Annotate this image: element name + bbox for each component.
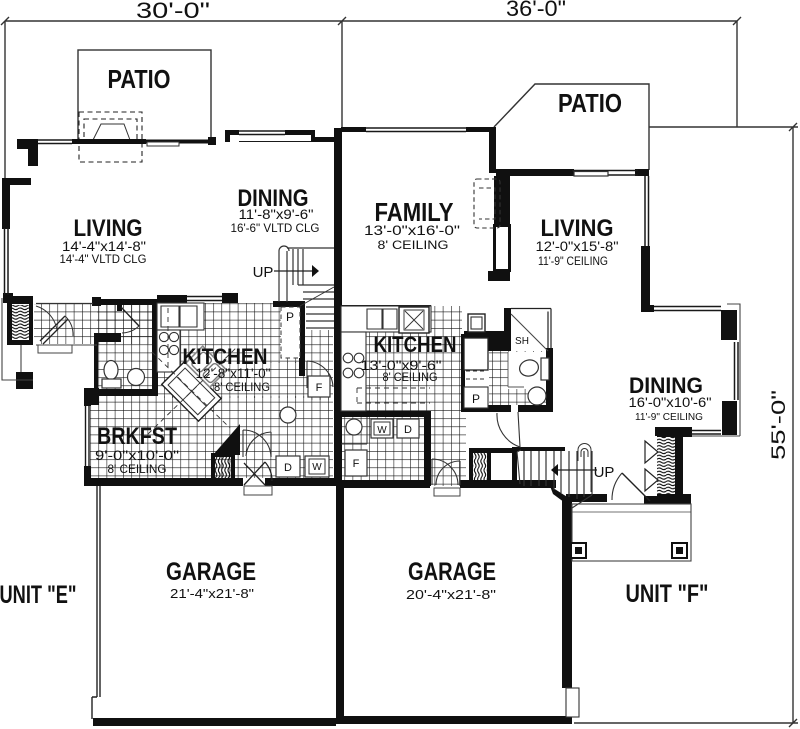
svg-text:F: F	[316, 382, 323, 394]
svg-text:GARAGE: GARAGE	[166, 558, 256, 586]
svg-text:UP: UP	[253, 264, 274, 281]
svg-text:D: D	[404, 424, 412, 436]
svg-text:P: P	[286, 310, 294, 324]
svg-text:30'-0": 30'-0"	[136, 0, 210, 23]
svg-text:36'-0": 36'-0"	[506, 0, 566, 21]
svg-text:11'-9" CEILING: 11'-9" CEILING	[635, 411, 703, 423]
svg-text:GARAGE: GARAGE	[408, 558, 496, 586]
svg-text:14'-4" VLTD CLG: 14'-4" VLTD CLG	[60, 252, 147, 266]
svg-text:UNIT "E": UNIT "E"	[0, 581, 77, 609]
svg-text:11'-9" CEILING: 11'-9" CEILING	[538, 254, 608, 268]
svg-text:8' CEILING: 8' CEILING	[378, 238, 449, 252]
svg-text:W: W	[377, 425, 387, 436]
svg-text:BRKFST: BRKFST	[97, 423, 177, 450]
svg-text:PATIO: PATIO	[108, 64, 171, 94]
svg-text:16'-0"x10'-6": 16'-0"x10'-6"	[629, 395, 712, 410]
svg-text:F: F	[353, 458, 360, 470]
svg-text:11'-8"x9'-6": 11'-8"x9'-6"	[239, 207, 314, 222]
svg-text:PATIO: PATIO	[558, 88, 622, 118]
svg-text:LIVING: LIVING	[541, 215, 614, 242]
svg-text:LIVING: LIVING	[74, 215, 143, 242]
svg-text:8' CEILING: 8' CEILING	[383, 370, 438, 384]
svg-text:20'-4"x21'-8": 20'-4"x21'-8"	[406, 587, 496, 602]
svg-text:KITCHEN: KITCHEN	[374, 332, 457, 357]
svg-text:UP: UP	[594, 464, 615, 481]
svg-text:SH: SH	[515, 336, 529, 347]
svg-text:21'-4"x21'-8": 21'-4"x21'-8"	[170, 586, 254, 601]
svg-text:P: P	[472, 392, 480, 406]
svg-text:9'-0"x10'-0": 9'-0"x10'-0"	[95, 448, 179, 463]
svg-text:13'-0"x16'-0": 13'-0"x16'-0"	[364, 223, 460, 238]
svg-text:W: W	[312, 462, 322, 473]
svg-text:16'-6" VLTD CLG: 16'-6" VLTD CLG	[231, 221, 320, 235]
svg-text:UNIT "F": UNIT "F"	[626, 580, 709, 608]
svg-text:D: D	[284, 462, 292, 474]
svg-text:12'-0"x15'-8": 12'-0"x15'-8"	[536, 239, 619, 254]
svg-text:12'-8"x11'-0": 12'-8"x11'-0"	[196, 366, 271, 381]
svg-text:8' CEILING: 8' CEILING	[214, 380, 270, 394]
svg-text:8' CEILING: 8' CEILING	[108, 462, 167, 476]
svg-text:55'-0": 55'-0"	[769, 390, 790, 460]
